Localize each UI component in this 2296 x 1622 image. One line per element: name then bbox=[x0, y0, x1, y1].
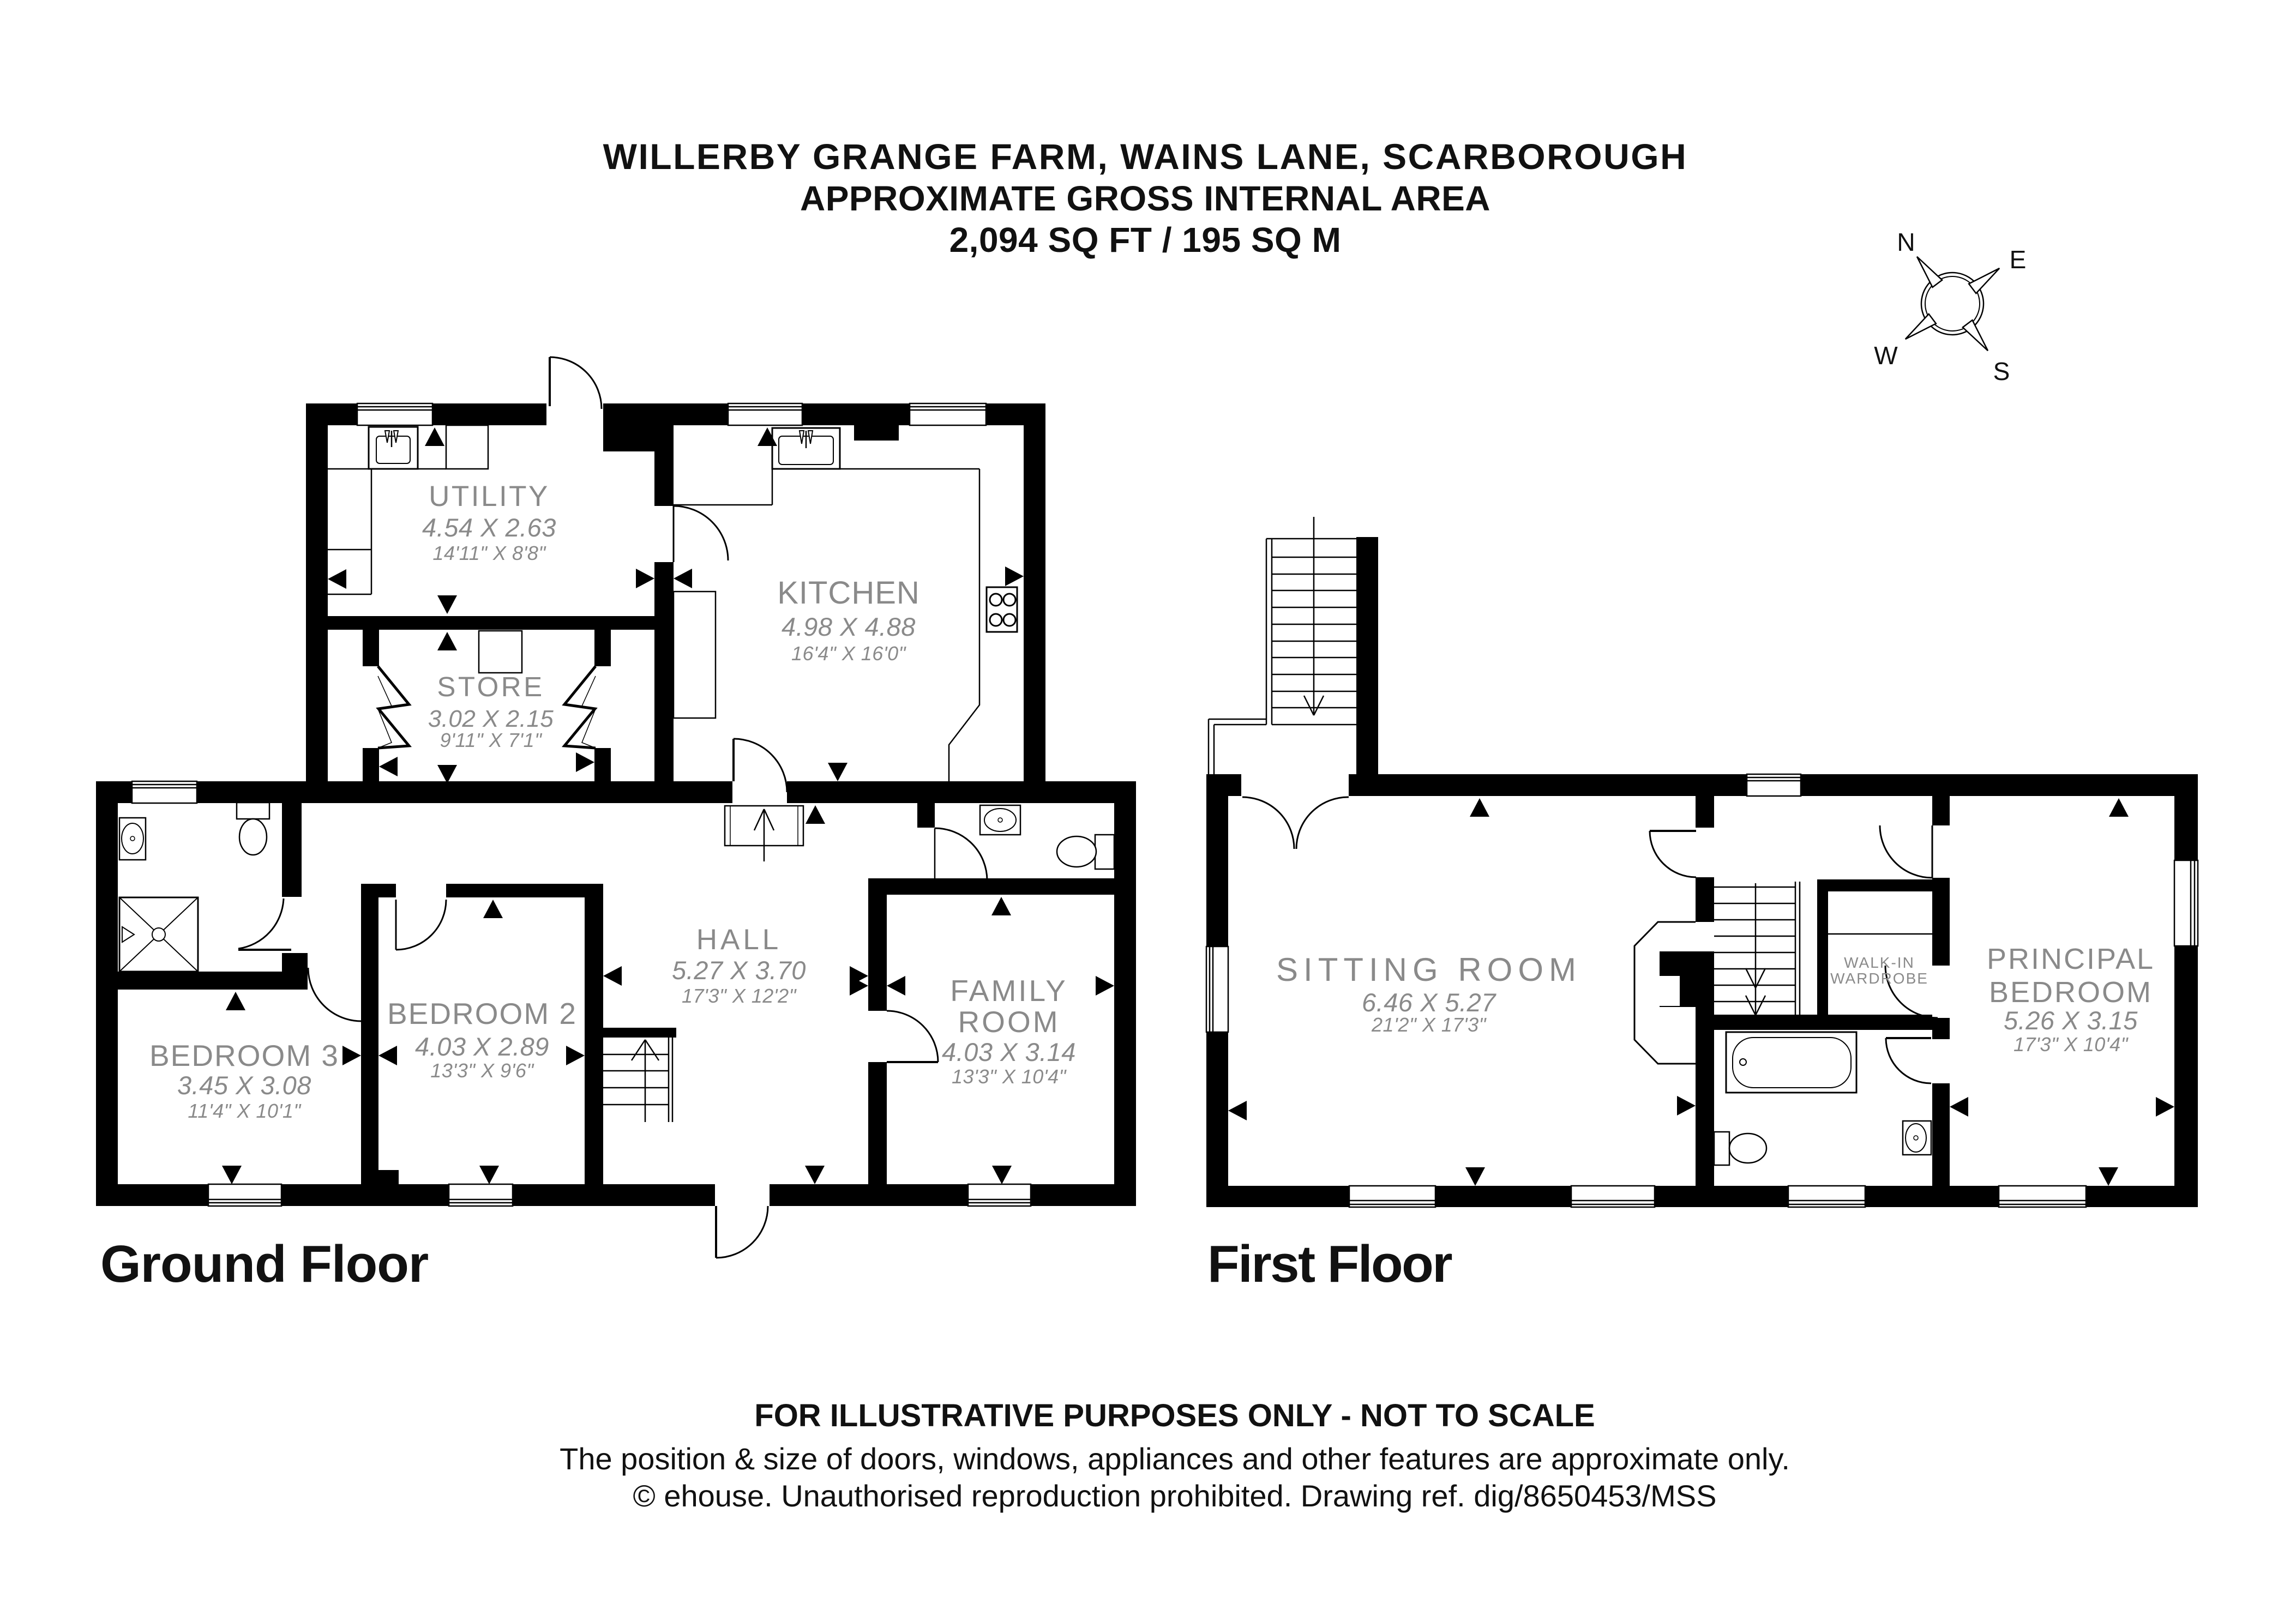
svg-text:The position & size of doors,: The position & size of doors, windows, a… bbox=[560, 1442, 1790, 1476]
svg-text:16'4" X 16'0": 16'4" X 16'0" bbox=[791, 642, 907, 665]
svg-text:PRINCIPAL: PRINCIPAL bbox=[1987, 943, 2155, 975]
svg-text:4.03 X 3.14: 4.03 X 3.14 bbox=[942, 1038, 1076, 1066]
svg-text:W: W bbox=[1874, 341, 1898, 370]
svg-text:STORE: STORE bbox=[437, 671, 544, 702]
svg-text:BEDROOM: BEDROOM bbox=[1989, 976, 2153, 1009]
svg-text:ROOM: ROOM bbox=[958, 1005, 1060, 1039]
svg-text:FOR ILLUSTRATIVE PURPOSES ONLY: FOR ILLUSTRATIVE PURPOSES ONLY - NOT TO … bbox=[754, 1398, 1595, 1433]
svg-text:S: S bbox=[1993, 357, 2010, 385]
svg-text:FAMILY: FAMILY bbox=[950, 974, 1068, 1008]
svg-text:WILLERBY GRANGE FARM, WAINS LA: WILLERBY GRANGE FARM, WAINS LANE, SCARBO… bbox=[603, 136, 1688, 177]
svg-text:13'3" X 9'6": 13'3" X 9'6" bbox=[430, 1059, 534, 1082]
svg-text:First Floor: First Floor bbox=[1207, 1235, 1452, 1293]
svg-text:21'2" X 17'3": 21'2" X 17'3" bbox=[1371, 1014, 1487, 1036]
svg-text:WALK-IN: WALK-IN bbox=[1844, 954, 1915, 971]
svg-text:6.46 X 5.27: 6.46 X 5.27 bbox=[1362, 988, 1496, 1017]
svg-text:KITCHEN: KITCHEN bbox=[777, 575, 920, 611]
svg-text:© ehouse. Unauthorised reprodu: © ehouse. Unauthorised reproduction proh… bbox=[633, 1479, 1717, 1513]
svg-text:14'11" X 8'8": 14'11" X 8'8" bbox=[432, 542, 546, 564]
svg-text:5.27 X 3.70: 5.27 X 3.70 bbox=[672, 956, 806, 985]
svg-text:2,094 SQ FT / 195 SQ M: 2,094 SQ FT / 195 SQ M bbox=[949, 220, 1342, 260]
svg-text:5.26 X 3.15: 5.26 X 3.15 bbox=[2004, 1006, 2138, 1035]
svg-text:13'3" X 10'4": 13'3" X 10'4" bbox=[952, 1065, 1067, 1088]
svg-text:WARDROBE: WARDROBE bbox=[1830, 970, 1928, 987]
svg-text:11'4" X 10'1": 11'4" X 10'1" bbox=[188, 1100, 302, 1122]
svg-text:BEDROOM 3: BEDROOM 3 bbox=[149, 1039, 339, 1072]
svg-text:UTILITY: UTILITY bbox=[429, 480, 550, 512]
svg-text:E: E bbox=[2010, 245, 2027, 274]
svg-text:HALL: HALL bbox=[696, 924, 782, 956]
svg-text:SITTING ROOM: SITTING ROOM bbox=[1276, 951, 1582, 988]
svg-text:4.03 X 2.89: 4.03 X 2.89 bbox=[415, 1032, 549, 1061]
svg-text:17'3" X 12'2": 17'3" X 12'2" bbox=[682, 985, 797, 1007]
svg-text:9'11" X 7'1": 9'11" X 7'1" bbox=[440, 729, 543, 751]
svg-text:3.45 X 3.08: 3.45 X 3.08 bbox=[177, 1071, 311, 1100]
svg-text:BEDROOM 2: BEDROOM 2 bbox=[387, 997, 577, 1030]
svg-text:4.54 X 2.63: 4.54 X 2.63 bbox=[422, 513, 556, 542]
svg-text:17'3" X 10'4": 17'3" X 10'4" bbox=[2013, 1033, 2129, 1056]
svg-text:3.02 X 2.15: 3.02 X 2.15 bbox=[428, 706, 554, 732]
svg-text:N: N bbox=[1897, 228, 1915, 256]
svg-text:APPROXIMATE GROSS INTERNAL ARE: APPROXIMATE GROSS INTERNAL AREA bbox=[800, 179, 1490, 218]
svg-text:4.98 X 4.88: 4.98 X 4.88 bbox=[782, 612, 916, 641]
svg-text:Ground Floor: Ground Floor bbox=[100, 1235, 428, 1293]
